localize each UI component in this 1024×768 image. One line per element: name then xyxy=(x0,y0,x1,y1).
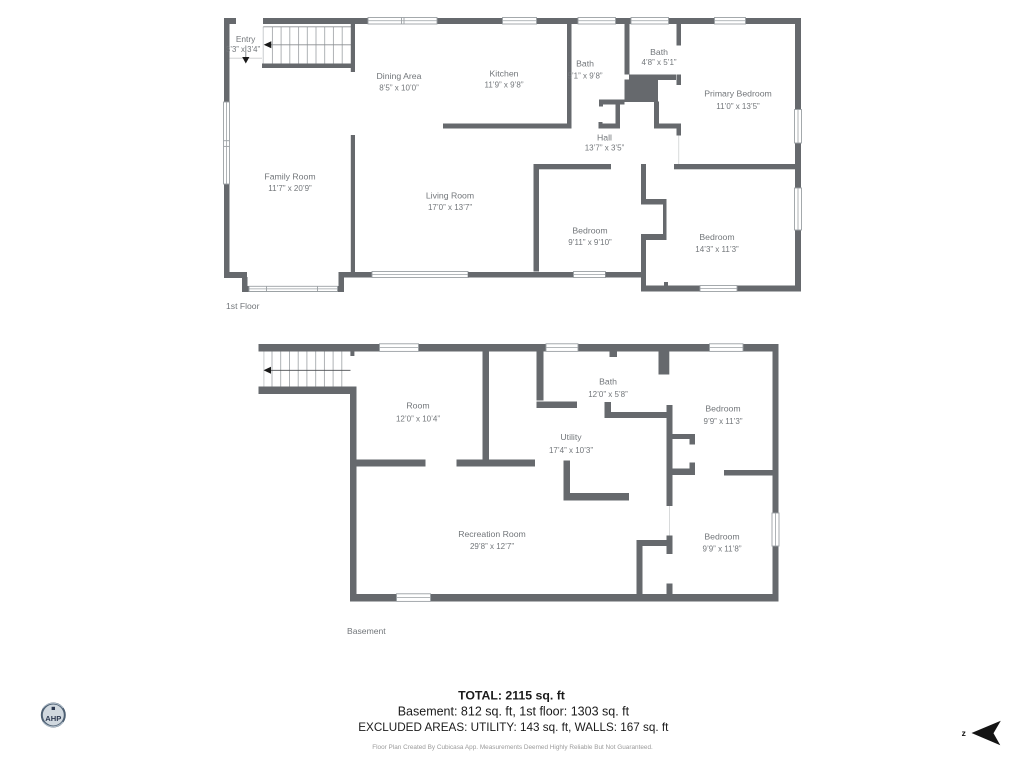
svg-text:AHP: AHP xyxy=(45,714,61,723)
svg-text:Kitchen: Kitchen xyxy=(490,69,519,79)
svg-text:Family Room: Family Room xyxy=(264,172,315,182)
svg-text:29’8” x 12’7”: 29’8” x 12’7” xyxy=(470,542,514,551)
svg-text:EXCLUDED AREAS: UTILITY: 143 s: EXCLUDED AREAS: UTILITY: 143 sq. ft, WAL… xyxy=(358,721,669,734)
svg-text:Bedroom: Bedroom xyxy=(699,232,734,242)
svg-text:11’9” x 9’8”: 11’9” x 9’8” xyxy=(485,80,524,89)
svg-text:17’4” x 10’3”: 17’4” x 10’3” xyxy=(549,446,593,455)
svg-text:12’0” x 5’8”: 12’0” x 5’8” xyxy=(588,390,628,399)
svg-text:Hall: Hall xyxy=(597,133,612,143)
svg-text:4’8” x 5’1”: 4’8” x 5’1” xyxy=(641,58,676,67)
svg-text:Bath: Bath xyxy=(650,47,668,57)
svg-text:17’0” x 13’7”: 17’0” x 13’7” xyxy=(428,203,472,212)
svg-text:1st Floor: 1st Floor xyxy=(226,301,260,311)
svg-text:Room: Room xyxy=(406,401,429,411)
svg-text:z: z xyxy=(962,728,966,738)
svg-text:Basement: 812 sq. ft, 1st floo: Basement: 812 sq. ft, 1st floor: 1303 sq… xyxy=(398,705,630,719)
svg-text:TOTAL: 2115 sq. ft: TOTAL: 2115 sq. ft xyxy=(458,689,565,703)
svg-text:Entry: Entry xyxy=(236,34,256,44)
svg-text:Dining Area: Dining Area xyxy=(377,71,422,81)
svg-text:Bedroom: Bedroom xyxy=(705,404,740,414)
svg-text:Primary Bedroom: Primary Bedroom xyxy=(704,89,772,99)
svg-text:Living Room: Living Room xyxy=(426,191,474,201)
svg-text:Recreation Room: Recreation Room xyxy=(458,529,526,539)
svg-text:Bath: Bath xyxy=(576,59,594,69)
svg-text:Bedroom: Bedroom xyxy=(704,532,739,542)
svg-text:9’9” x 11’3”: 9’9” x 11’3” xyxy=(704,417,743,426)
svg-text:5’1” x 9’8”: 5’1” x 9’8” xyxy=(567,71,602,80)
svg-text:8’5” x 10’0”: 8’5” x 10’0” xyxy=(379,83,419,92)
svg-text:11’0” x 13’5”: 11’0” x 13’5” xyxy=(716,102,760,111)
svg-text:11’7” x 20’9”: 11’7” x 20’9” xyxy=(268,184,312,193)
svg-text:Bedroom: Bedroom xyxy=(572,226,607,236)
svg-text:14’3” x 11’3”: 14’3” x 11’3” xyxy=(695,245,739,254)
svg-text:12’0” x 10’4”: 12’0” x 10’4” xyxy=(396,414,440,423)
svg-text:Bath: Bath xyxy=(599,377,617,387)
svg-text:Basement: Basement xyxy=(347,626,386,636)
svg-text:Floor Plan Created By Cubicasa: Floor Plan Created By Cubicasa App. Meas… xyxy=(372,744,653,751)
svg-text:9’9” x 11’8”: 9’9” x 11’8” xyxy=(703,544,742,553)
svg-text:3’3” x 3’4”: 3’3” x 3’4” xyxy=(226,45,261,54)
svg-text:9’11” x 9’10”: 9’11” x 9’10” xyxy=(568,238,612,247)
svg-text:13’7” x 3’5”: 13’7” x 3’5” xyxy=(585,143,625,152)
svg-text:Utility: Utility xyxy=(560,432,582,442)
